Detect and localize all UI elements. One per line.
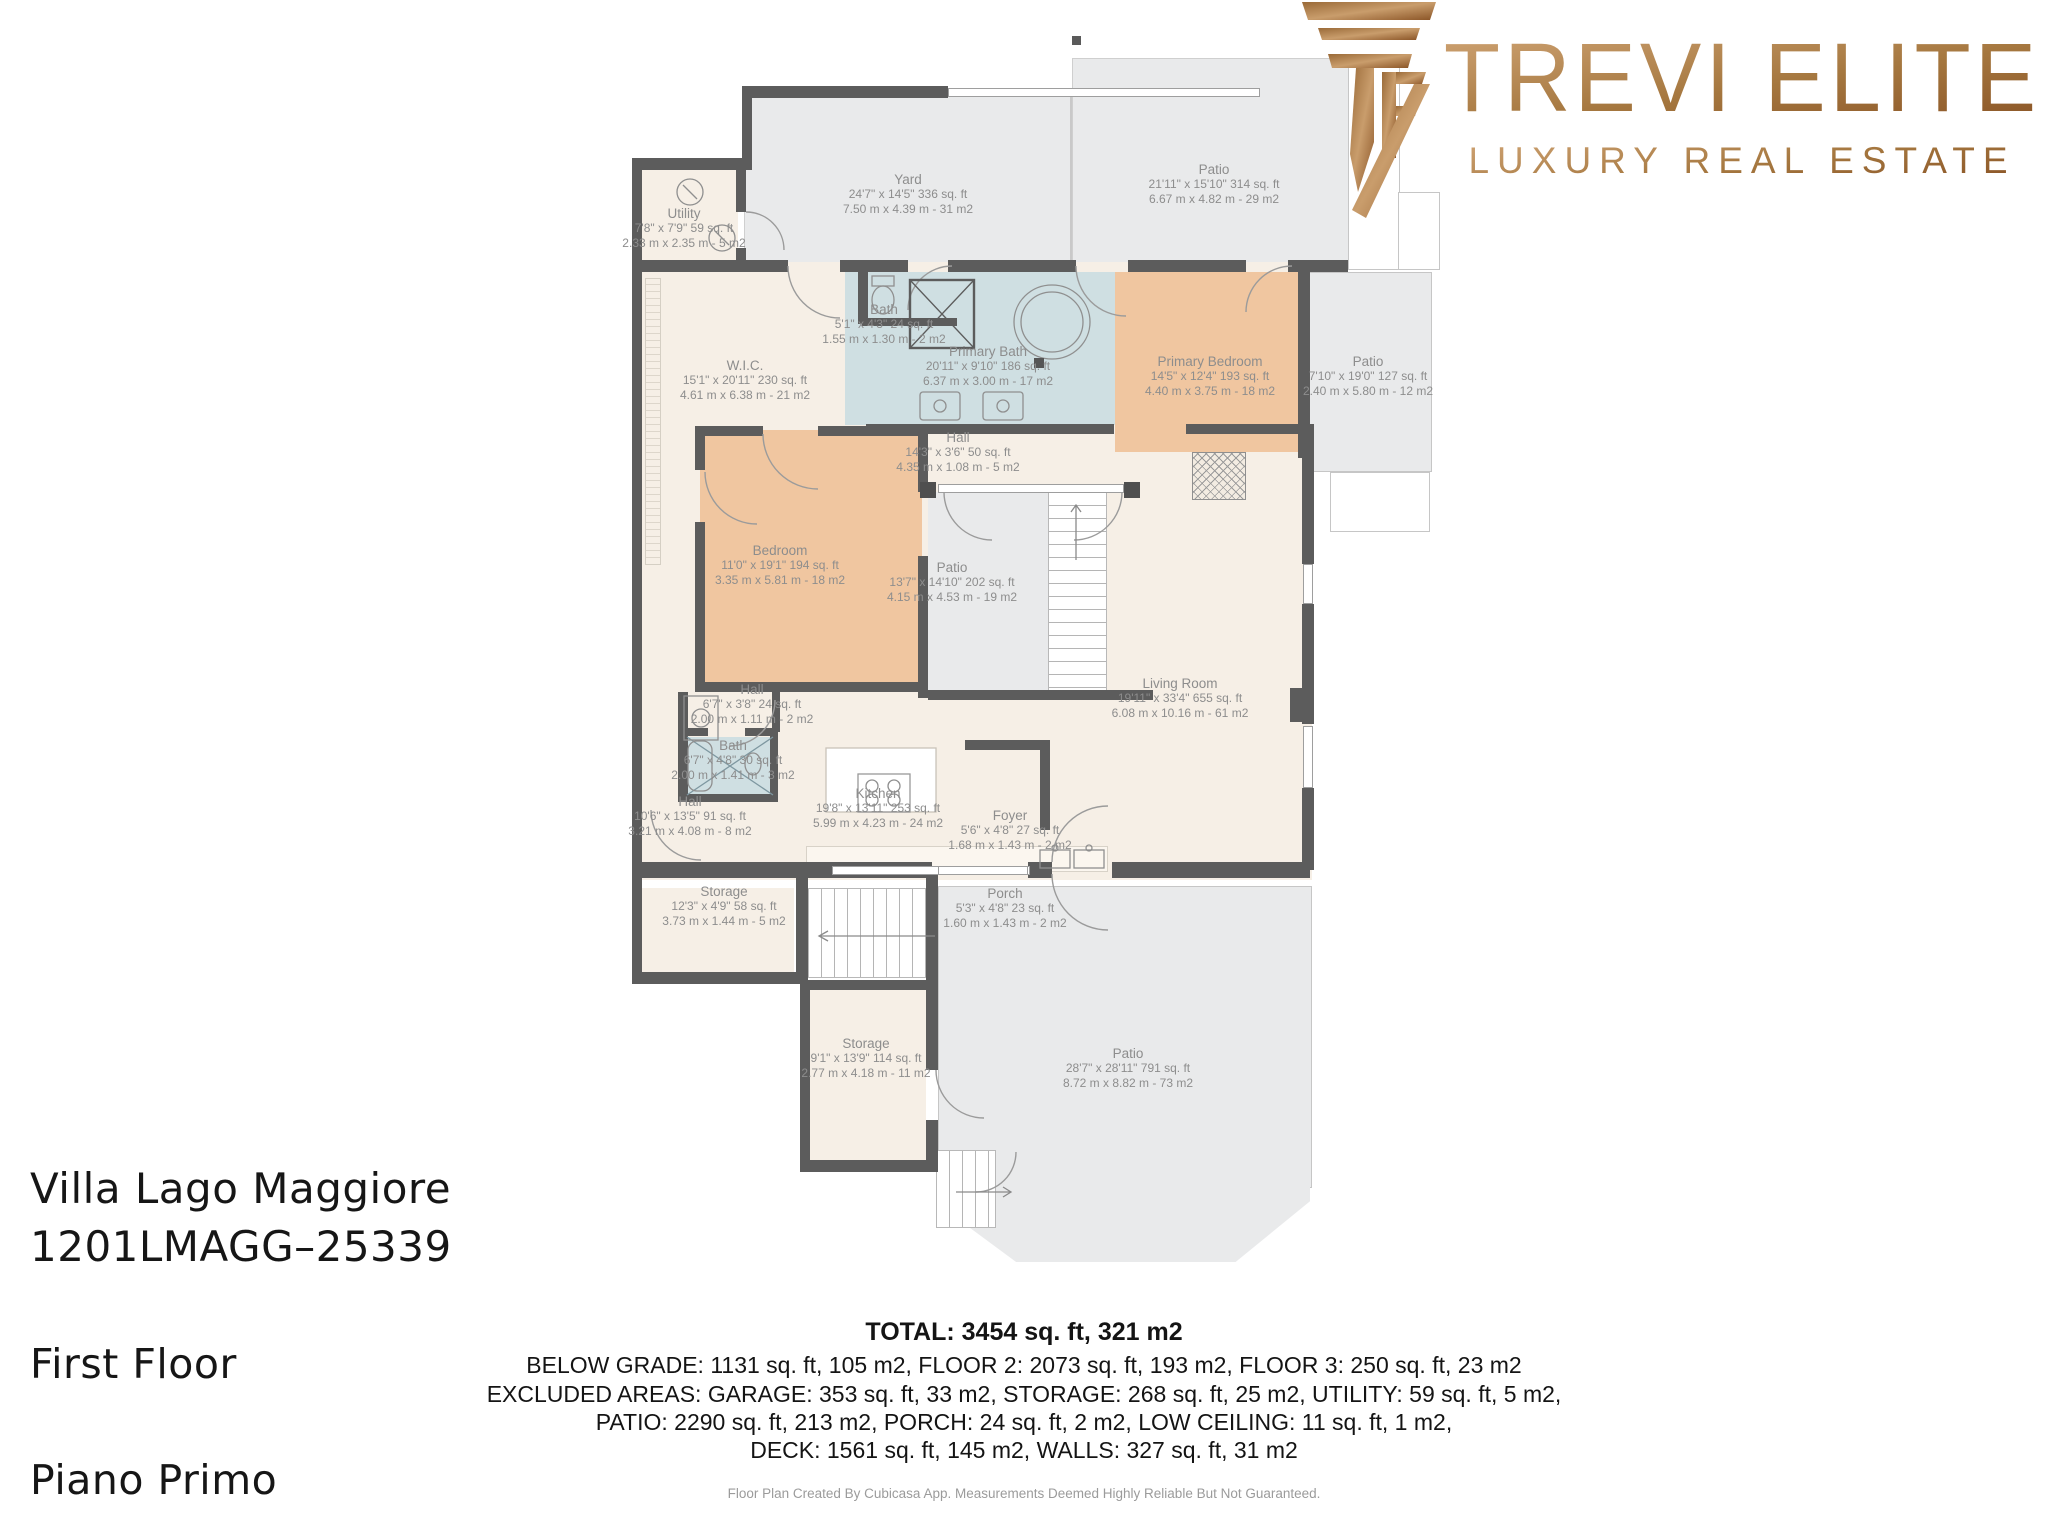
room-label-patio-center: Patio 13'7" x 14'10" 202 sq. ft 4.15 m x… bbox=[887, 560, 1017, 605]
room-label-storage-upper: Storage 12'3" x 4'9" 58 sq. ft 3.73 m x … bbox=[662, 884, 785, 929]
summary-line-excluded: EXCLUDED AREAS: GARAGE: 353 sq. ft, 33 m… bbox=[0, 1381, 2048, 1408]
vanity-sinks-icon bbox=[920, 392, 1023, 420]
summary-line-floors: BELOW GRADE: 1131 sq. ft, 105 m2, FLOOR … bbox=[0, 1352, 2048, 1379]
doors-and-fixtures-layer bbox=[0, 0, 2048, 1536]
room-label-kitchen: Kitchen 19'8" x 13'11" 253 sq. ft 5.99 m… bbox=[813, 786, 943, 831]
room-label-primary-bedroom: Primary Bedroom 14'5" x 12'4" 193 sq. ft… bbox=[1145, 354, 1275, 399]
room-label-utility: Utility 7'8" x 7'9" 59 sq. ft 2.33 m x 2… bbox=[622, 206, 745, 251]
brand-tagline: LUXURY REAL ESTATE bbox=[1436, 140, 2048, 182]
room-label-bath-small: Bath 6'7" x 4'8" 30 sq. ft 2.00 m x 1.41… bbox=[671, 738, 794, 783]
listing-code: 1201LMAGG–25339 bbox=[30, 1222, 452, 1271]
disclaimer-text: Floor Plan Created By Cubicasa App. Meas… bbox=[0, 1486, 2048, 1501]
room-label-foyer: Foyer 5'6" x 4'8" 27 sq. ft 1.68 m x 1.4… bbox=[948, 808, 1071, 853]
summary-line-deck: DECK: 1561 sq. ft, 145 m2, WALLS: 327 sq… bbox=[0, 1437, 2048, 1464]
summary-total: TOTAL: 3454 sq. ft, 321 m2 bbox=[0, 1318, 2048, 1347]
room-label-hall-upper: Hall 14'3" x 3'6" 50 sq. ft 4.35 m x 1.0… bbox=[896, 430, 1019, 475]
room-label-wic: W.I.C. 15'1" x 20'11" 230 sq. ft 4.61 m … bbox=[680, 358, 810, 403]
summary-line-patio: PATIO: 2290 sq. ft, 213 m2, PORCH: 24 sq… bbox=[0, 1409, 2048, 1436]
property-name: Villa Lago Maggiore bbox=[30, 1164, 451, 1213]
room-label-patio-right: Patio 7'10" x 19'0" 127 sq. ft 2.40 m x … bbox=[1303, 354, 1433, 399]
room-label-bath-top: Bath 5'1" x 4'3" 24 sq. ft 1.55 m x 1.30… bbox=[822, 302, 945, 347]
room-label-hall-lower: Hall 10'6" x 13'5" 91 sq. ft 3.21 m x 4.… bbox=[628, 794, 751, 839]
room-label-storage-lower: Storage 9'1" x 13'9" 114 sq. ft 2.77 m x… bbox=[801, 1036, 930, 1081]
room-label-living-room: Living Room 19'11" x 33'4" 655 sq. ft 6.… bbox=[1112, 676, 1249, 721]
room-label-primary-bath: Primary Bath 20'11" x 9'10" 186 sq. ft 6… bbox=[923, 344, 1053, 389]
floor-plan-page: Utility 7'8" x 7'9" 59 sq. ft 2.33 m x 2… bbox=[0, 0, 2048, 1536]
trevi-elite-monogram-icon bbox=[1294, 0, 1444, 222]
room-label-yard: Yard 24'7" x 14'5" 336 sq. ft 7.50 m x 4… bbox=[843, 172, 973, 217]
room-label-hall-small: Hall 6'7" x 3'8" 24 sq. ft 2.00 m x 1.11… bbox=[691, 682, 814, 727]
brand-name: TREVI ELITE bbox=[1436, 23, 2048, 134]
room-label-porch: Porch 5'3" x 4'8" 23 sq. ft 1.60 m x 1.4… bbox=[943, 886, 1066, 931]
room-label-patio-top: Patio 21'11" x 15'10" 314 sq. ft 6.67 m … bbox=[1149, 162, 1280, 207]
room-label-bedroom: Bedroom 11'0" x 19'1" 194 sq. ft 3.35 m … bbox=[715, 543, 845, 588]
room-label-patio-bottom: Patio 28'7" x 28'11" 791 sq. ft 8.72 m x… bbox=[1063, 1046, 1193, 1091]
